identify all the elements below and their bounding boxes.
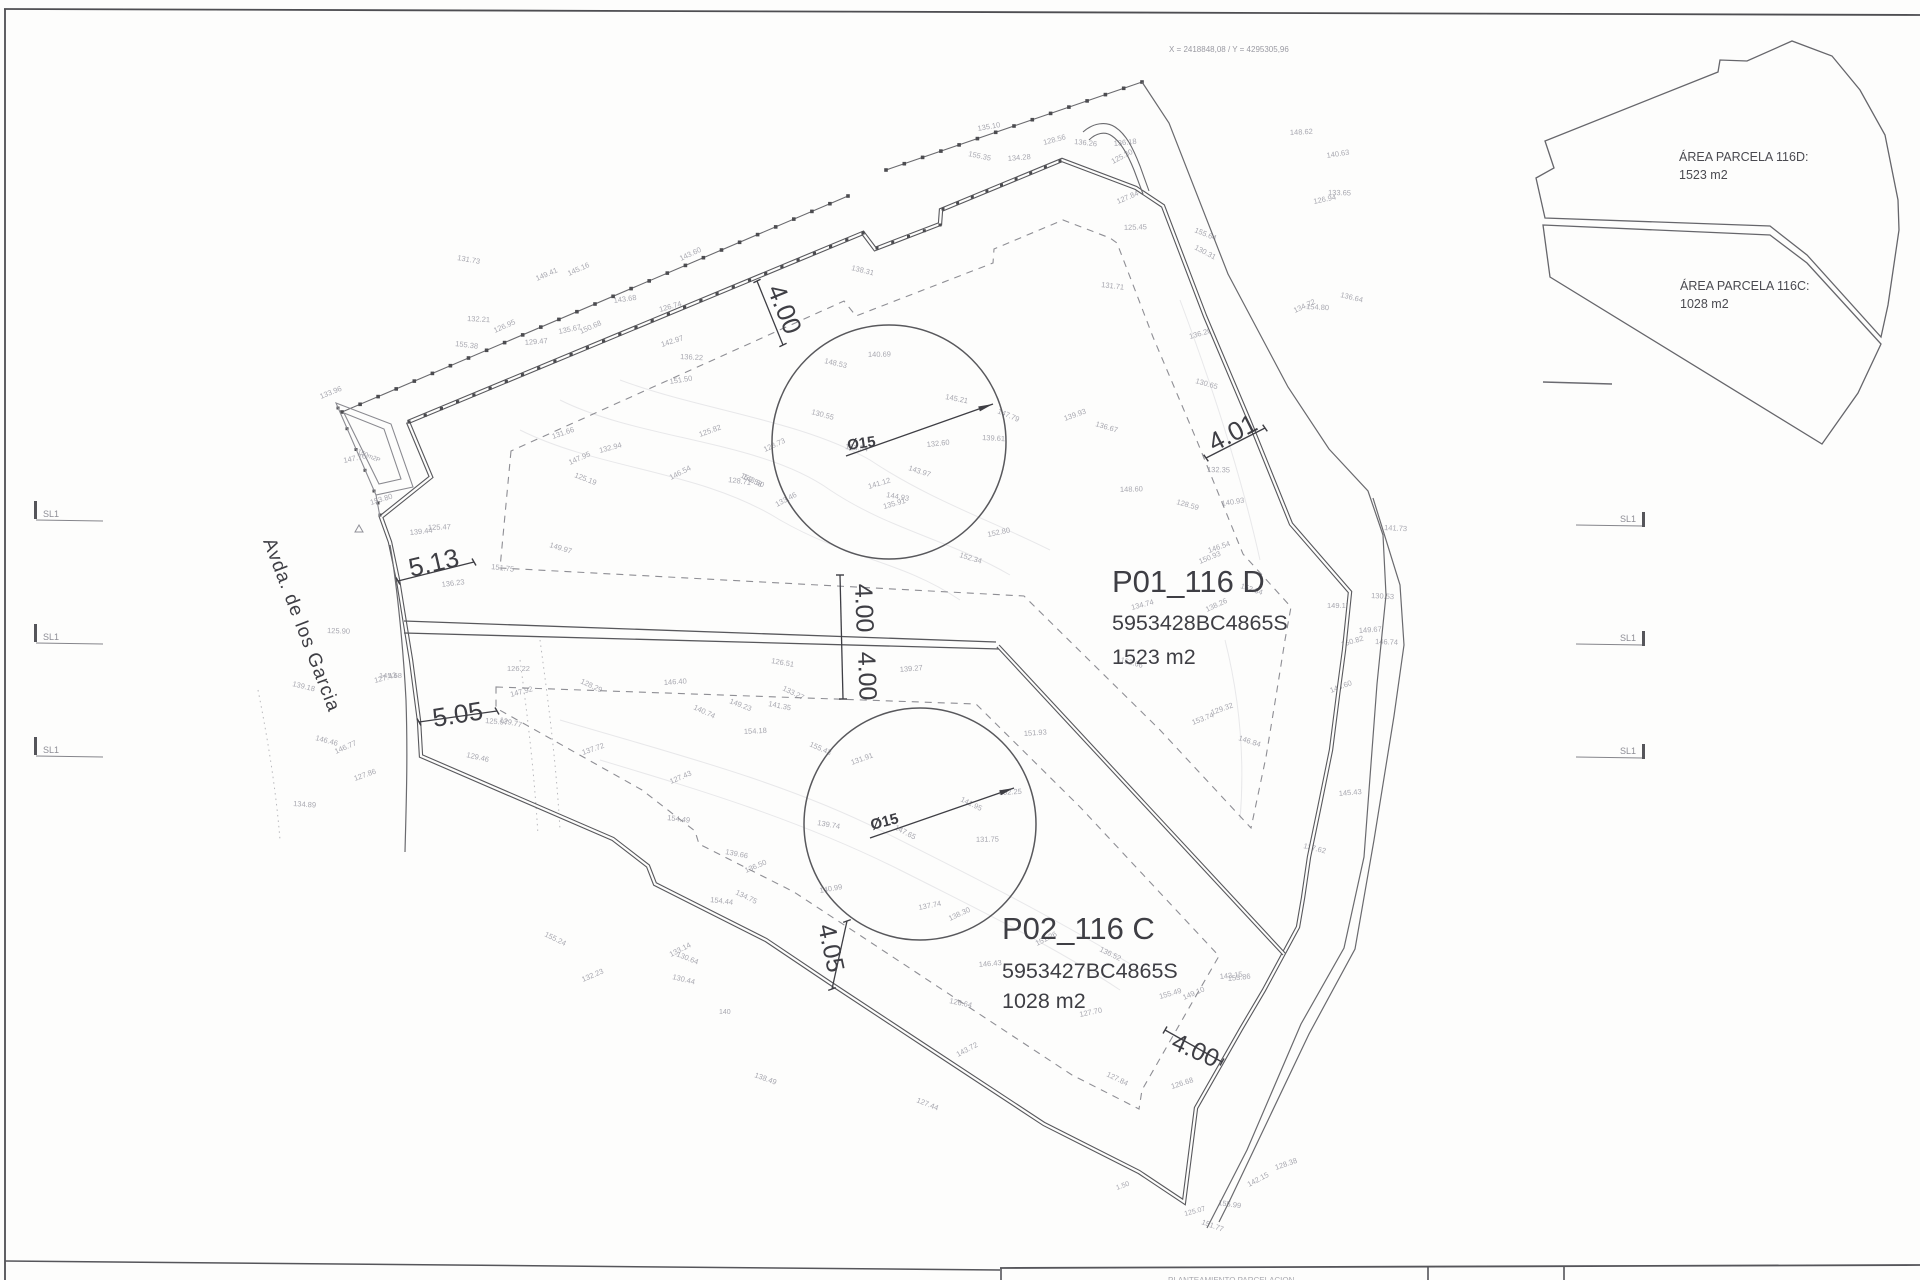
svg-text:4.00: 4.00 xyxy=(852,651,882,701)
svg-text:SL1: SL1 xyxy=(43,509,59,519)
svg-text:140: 140 xyxy=(719,1009,731,1016)
svg-text:SL1: SL1 xyxy=(43,632,59,642)
svg-text:X = 2418848,08 / Y = 4295305: X = 2418848,08 / Y = 4295305,96 xyxy=(1169,45,1289,54)
svg-text:134.89: 134.89 xyxy=(293,799,317,810)
svg-text:125.90: 125.90 xyxy=(327,626,350,636)
svg-text:125.45: 125.45 xyxy=(1124,222,1147,232)
svg-text:136.22: 136.22 xyxy=(680,352,703,362)
svg-text:1028 m2: 1028 m2 xyxy=(1680,297,1729,311)
svg-text:4.00: 4.00 xyxy=(849,583,879,633)
svg-text:1523 m2: 1523 m2 xyxy=(1112,645,1196,669)
svg-text:148.60: 148.60 xyxy=(1120,484,1143,494)
svg-text:133.65: 133.65 xyxy=(1328,188,1351,197)
svg-text:154.18: 154.18 xyxy=(744,726,767,736)
svg-text:151.93: 151.93 xyxy=(1024,727,1048,738)
svg-text:SL1: SL1 xyxy=(43,745,59,755)
svg-text:139.61: 139.61 xyxy=(982,433,1005,443)
svg-text:146.40: 146.40 xyxy=(664,676,688,687)
svg-text:130.53: 130.53 xyxy=(1371,591,1394,601)
svg-text:5953428BC4865S: 5953428BC4865S xyxy=(1112,611,1288,635)
svg-text:PLANTEAMIENTO PARCELACION: PLANTEAMIENTO PARCELACION xyxy=(1168,1276,1295,1280)
svg-text:126.22: 126.22 xyxy=(507,664,530,673)
svg-text:132.35: 132.35 xyxy=(1207,465,1230,474)
svg-text:5953427BC4865S: 5953427BC4865S xyxy=(1002,959,1178,983)
svg-text:P02_116 C: P02_116 C xyxy=(1002,911,1155,946)
svg-text:SL1: SL1 xyxy=(1620,633,1636,643)
svg-text:140.69: 140.69 xyxy=(868,350,891,359)
svg-text:1523 m2: 1523 m2 xyxy=(1679,168,1728,182)
svg-text:P01_116 D: P01_116 D xyxy=(1112,564,1265,599)
svg-text:1028 m2: 1028 m2 xyxy=(1002,989,1086,1013)
svg-text:ÁREA PARCELA 116C:: ÁREA PARCELA 116C: xyxy=(1680,278,1809,293)
svg-text:132.21: 132.21 xyxy=(467,314,490,324)
svg-text:149.67: 149.67 xyxy=(1359,624,1383,635)
svg-text:146.74: 146.74 xyxy=(1375,637,1398,647)
svg-text:148.62: 148.62 xyxy=(1290,127,1313,137)
svg-text:141.73: 141.73 xyxy=(1384,523,1407,533)
svg-text:ÁREA PARCELA 116D:: ÁREA PARCELA 116D: xyxy=(1679,149,1808,164)
svg-text:131.75: 131.75 xyxy=(976,835,999,844)
svg-text:SL1: SL1 xyxy=(1620,746,1636,756)
svg-text:145.68: 145.68 xyxy=(379,671,402,680)
svg-text:SL1: SL1 xyxy=(1620,514,1636,524)
